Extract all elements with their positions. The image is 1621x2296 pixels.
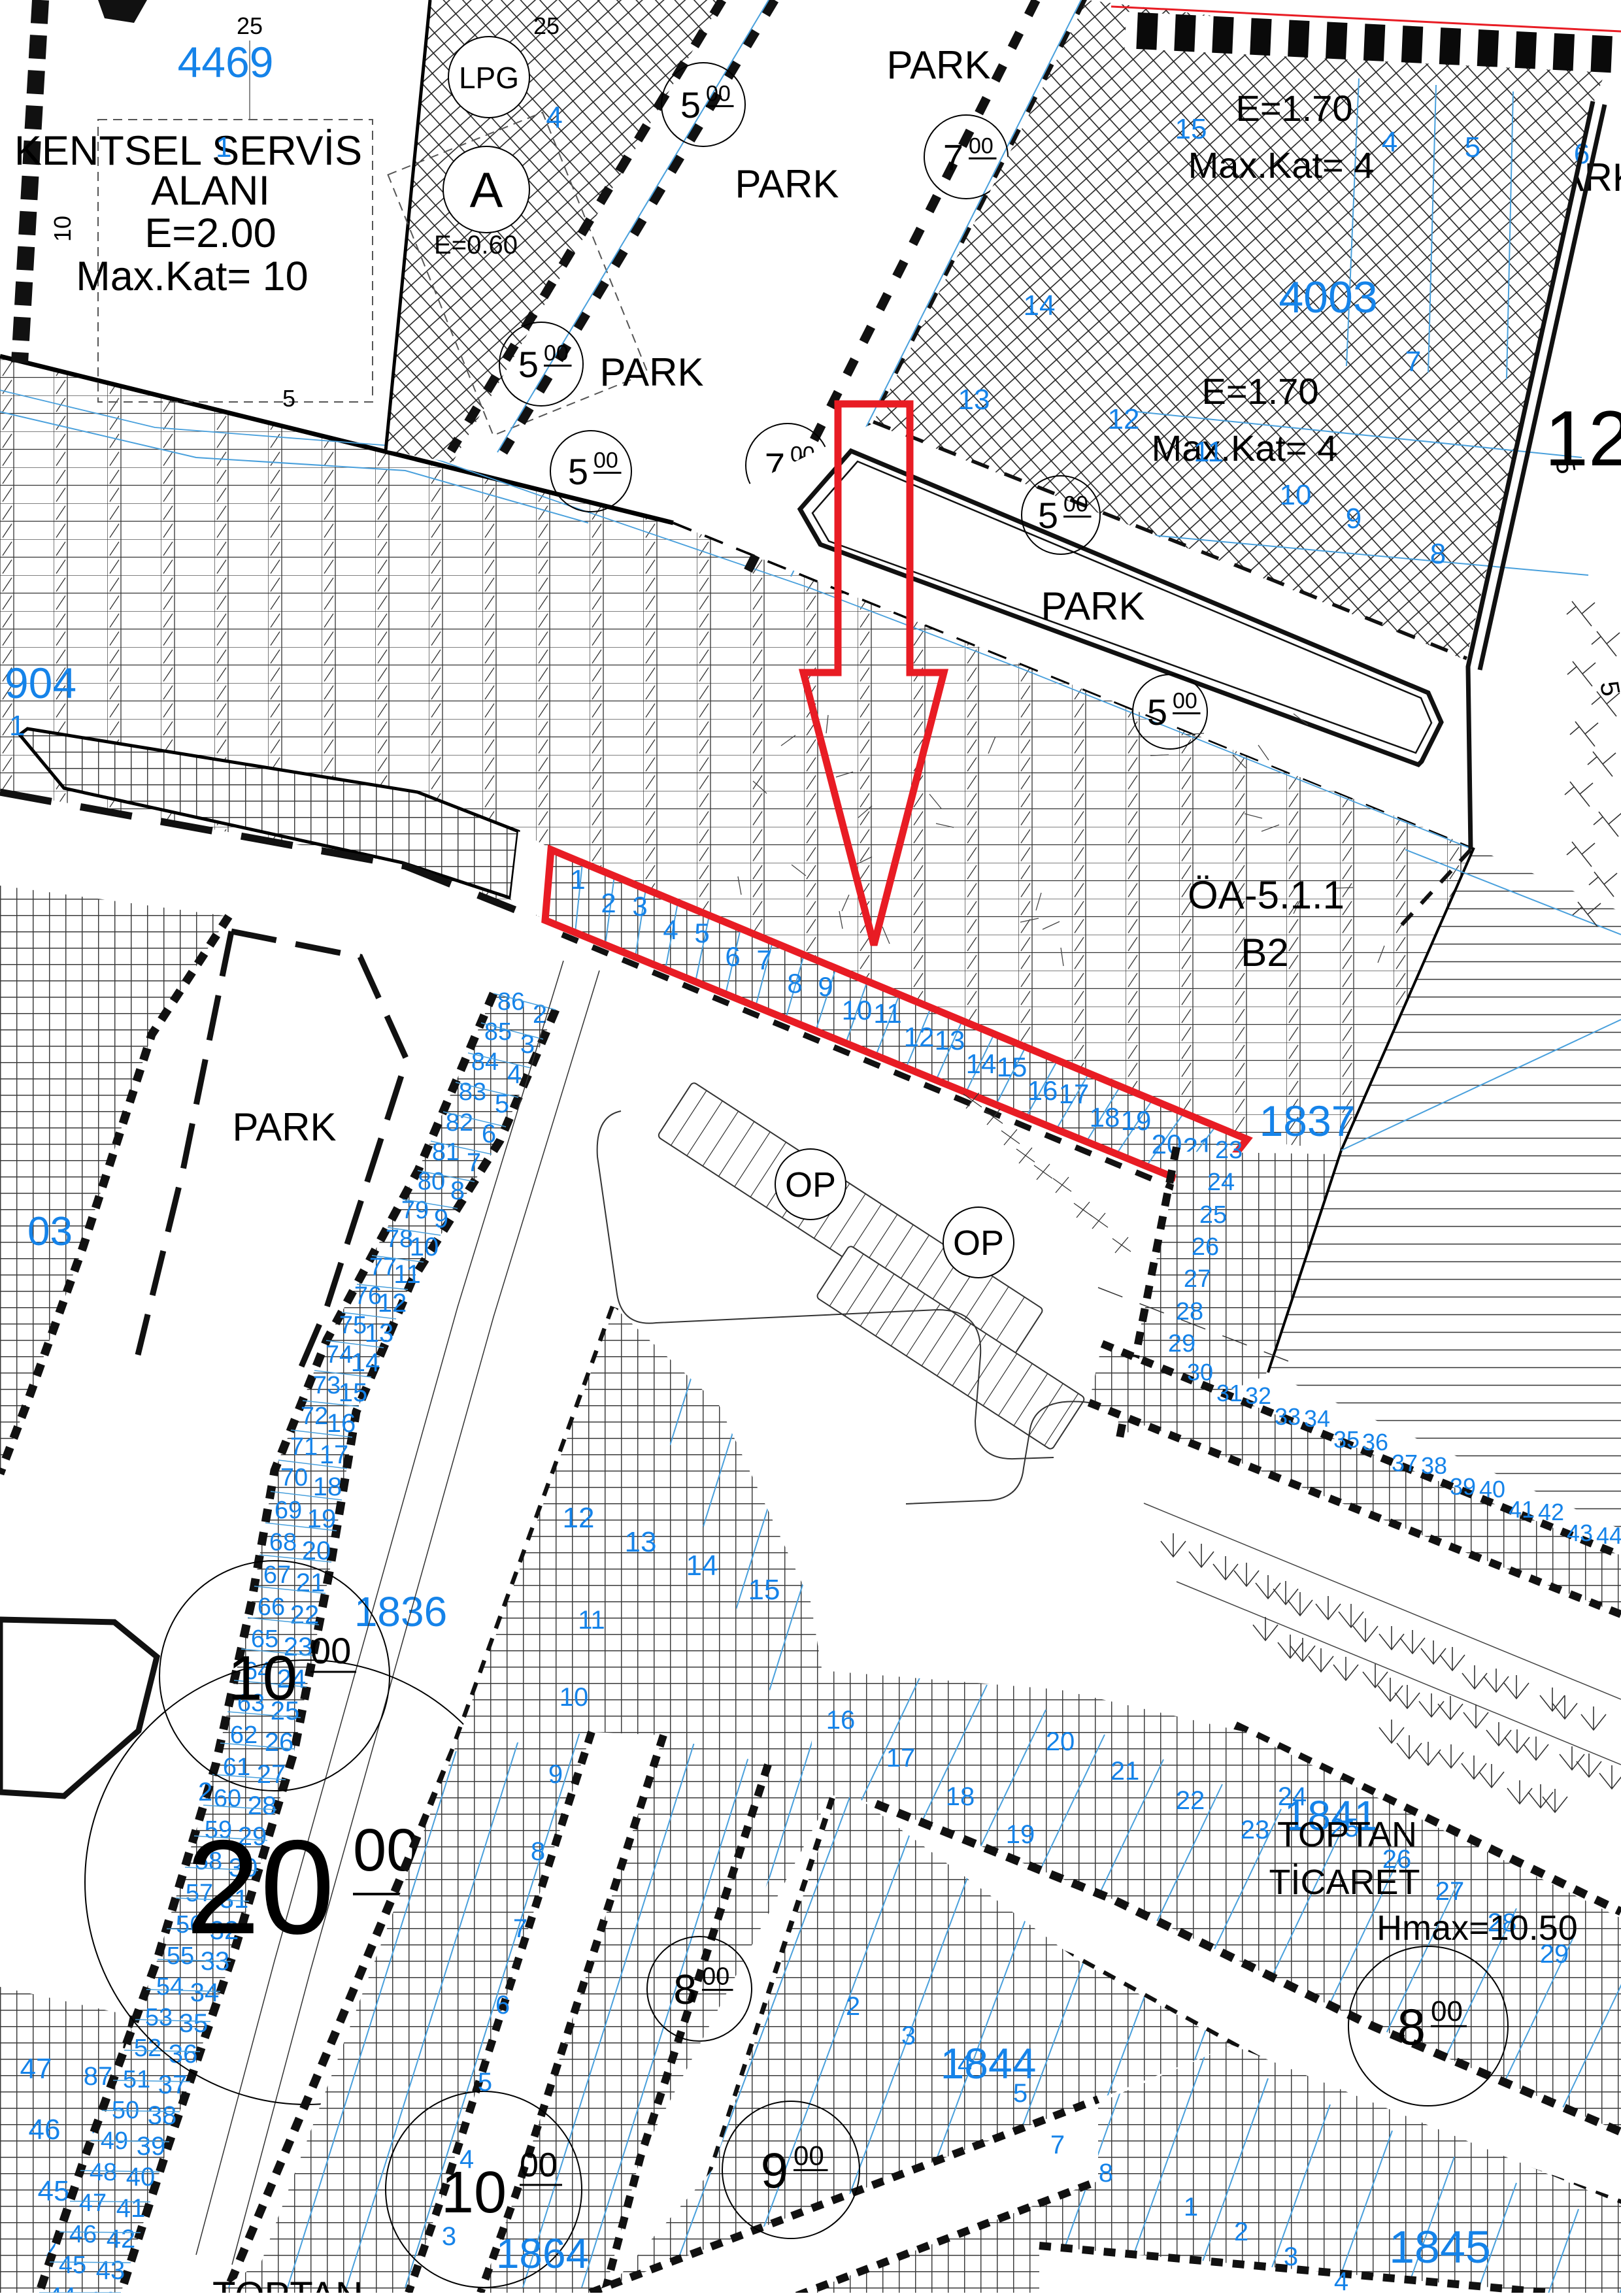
svg-text:904: 904 (5, 659, 76, 707)
svg-text:4: 4 (663, 914, 678, 945)
svg-text:PARK: PARK (600, 350, 704, 394)
svg-text:5: 5 (518, 344, 539, 385)
svg-text:ALANI: ALANI (151, 168, 270, 214)
svg-text:41: 41 (116, 2194, 146, 2223)
svg-text:2: 2 (1234, 2218, 1248, 2246)
svg-text:A: A (470, 163, 503, 218)
svg-text:22: 22 (290, 1601, 320, 1629)
svg-text:43: 43 (96, 2256, 125, 2285)
svg-text:10: 10 (842, 995, 873, 1025)
svg-text:37: 37 (1392, 1450, 1418, 1476)
svg-text:39: 39 (137, 2132, 166, 2161)
svg-text:18: 18 (946, 1782, 975, 1811)
svg-text:12: 12 (563, 1502, 595, 1534)
svg-text:85: 85 (484, 1018, 512, 1046)
svg-text:13: 13 (625, 1526, 657, 1558)
svg-text:5: 5 (694, 918, 709, 948)
svg-text:00: 00 (794, 2140, 824, 2171)
svg-text:13: 13 (365, 1319, 394, 1348)
svg-text:27: 27 (257, 1760, 286, 1789)
svg-text:00: 00 (593, 448, 618, 473)
svg-text:75: 75 (339, 1312, 367, 1339)
svg-text:66: 66 (258, 1593, 285, 1621)
svg-text:5: 5 (680, 84, 701, 125)
svg-text:80: 80 (418, 1168, 445, 1195)
svg-text:00: 00 (1063, 491, 1088, 516)
svg-text:2: 2 (846, 1992, 860, 2021)
svg-text:OP: OP (785, 1165, 836, 1205)
svg-text:8: 8 (531, 1837, 545, 1866)
svg-text:38: 38 (148, 2101, 177, 2130)
svg-text:Max.Kat= 4: Max.Kat= 4 (1188, 144, 1375, 186)
svg-text:8: 8 (1099, 2159, 1113, 2188)
svg-text:ÖA-5.1.1: ÖA-5.1.1 (1188, 873, 1345, 917)
svg-text:19: 19 (1121, 1105, 1152, 1136)
svg-text:11: 11 (873, 998, 902, 1029)
svg-text:5: 5 (478, 2068, 492, 2097)
svg-text:7: 7 (1050, 2131, 1065, 2159)
svg-text:10: 10 (410, 1233, 439, 1261)
svg-text:16: 16 (826, 1706, 856, 1735)
svg-text:6: 6 (725, 941, 740, 972)
svg-text:18: 18 (1090, 1102, 1120, 1133)
svg-text:E=0.60: E=0.60 (434, 231, 518, 259)
svg-text:KENTSEL SERVİS: KENTSEL SERVİS (14, 128, 362, 174)
svg-text:PARK: PARK (887, 43, 991, 87)
svg-text:15: 15 (1175, 113, 1207, 145)
svg-text:00: 00 (520, 2146, 558, 2184)
svg-text:41: 41 (1509, 1496, 1535, 1523)
svg-text:7: 7 (756, 944, 771, 975)
svg-text:8: 8 (1430, 538, 1446, 570)
svg-text:7: 7 (467, 1148, 481, 1177)
svg-text:25: 25 (533, 12, 560, 39)
svg-text:11: 11 (1194, 436, 1224, 468)
svg-text:9: 9 (818, 971, 833, 1002)
svg-text:14: 14 (1024, 290, 1056, 322)
svg-text:72: 72 (301, 1403, 328, 1430)
svg-text:5: 5 (1147, 691, 1167, 733)
svg-text:24: 24 (1207, 1169, 1235, 1196)
svg-text:34: 34 (190, 1978, 220, 2007)
svg-text:00: 00 (706, 81, 731, 106)
svg-text:29: 29 (1168, 1330, 1195, 1357)
svg-text:12: 12 (1108, 403, 1140, 435)
svg-text:44: 44 (86, 2287, 116, 2293)
svg-text:3: 3 (1284, 2242, 1298, 2271)
svg-text:4: 4 (1334, 2267, 1348, 2293)
svg-text:11: 11 (393, 1260, 421, 1289)
svg-text:00: 00 (969, 133, 994, 158)
svg-text:83: 83 (459, 1078, 486, 1106)
svg-text:14: 14 (686, 1550, 718, 1582)
svg-text:48: 48 (90, 2159, 117, 2186)
svg-text:14: 14 (966, 1048, 997, 1079)
svg-text:9: 9 (434, 1205, 448, 1233)
svg-text:5: 5 (282, 385, 295, 412)
svg-text:5: 5 (1465, 131, 1480, 163)
svg-text:4: 4 (546, 100, 563, 134)
svg-text:25: 25 (237, 12, 263, 39)
svg-text:7: 7 (513, 1914, 527, 1943)
svg-text:45: 45 (59, 2252, 86, 2279)
svg-text:79: 79 (401, 1197, 429, 1224)
svg-text:32: 32 (1245, 1382, 1271, 1409)
svg-text:Max.Kat= 10: Max.Kat= 10 (76, 254, 308, 299)
svg-text:PARK: PARK (735, 162, 839, 206)
svg-text:TOPTAN: TOPTAN (1277, 1815, 1417, 1854)
svg-text:69: 69 (275, 1497, 302, 1524)
svg-text:16: 16 (327, 1409, 356, 1438)
svg-text:36: 36 (1362, 1429, 1388, 1456)
svg-text:2: 2 (198, 1778, 212, 1806)
svg-text:15: 15 (339, 1378, 368, 1407)
svg-text:36: 36 (169, 2040, 198, 2069)
svg-text:TİCARET: TİCARET (1269, 1863, 1420, 1902)
svg-text:10: 10 (49, 216, 76, 242)
svg-text:3: 3 (632, 891, 647, 922)
svg-text:52: 52 (134, 2035, 161, 2062)
svg-text:60: 60 (214, 1785, 241, 1812)
svg-text:3: 3 (520, 1030, 535, 1059)
svg-text:35: 35 (179, 2009, 209, 2038)
svg-text:E=1.70: E=1.70 (1235, 88, 1352, 129)
svg-text:20: 20 (186, 1812, 335, 1962)
svg-text:1837: 1837 (1260, 1097, 1356, 1145)
svg-text:84: 84 (471, 1048, 499, 1076)
svg-text:6: 6 (495, 1991, 510, 2020)
svg-text:22: 22 (1176, 1786, 1205, 1815)
svg-text:67: 67 (263, 1561, 291, 1589)
svg-text:37: 37 (158, 2071, 188, 2099)
svg-text:42: 42 (1538, 1499, 1564, 1525)
svg-text:44: 44 (1596, 1522, 1621, 1549)
svg-text:70: 70 (280, 1464, 308, 1491)
svg-text:8: 8 (1397, 1998, 1426, 2055)
svg-text:73: 73 (313, 1372, 341, 1399)
svg-text:00: 00 (1431, 1995, 1463, 2027)
svg-text:B2: B2 (1241, 931, 1288, 974)
svg-text:Max.Kat= 4: Max.Kat= 4 (1152, 427, 1338, 469)
svg-text:17: 17 (886, 1744, 916, 1772)
svg-text:9: 9 (761, 2143, 788, 2199)
svg-text:9: 9 (548, 1760, 563, 1789)
svg-text:00: 00 (544, 341, 569, 365)
svg-text:8: 8 (787, 968, 802, 999)
svg-text:TOPTAN: TOPTAN (212, 2274, 363, 2293)
svg-text:54: 54 (156, 1973, 184, 2001)
svg-text:26: 26 (1192, 1233, 1219, 1261)
svg-text:74: 74 (326, 1341, 353, 1369)
svg-text:00: 00 (1173, 688, 1197, 713)
svg-text:23: 23 (1241, 1816, 1270, 1844)
svg-text:39: 39 (1450, 1473, 1476, 1500)
svg-text:38: 38 (1421, 1452, 1447, 1479)
svg-text:3: 3 (901, 2021, 916, 2050)
svg-text:23: 23 (1215, 1137, 1243, 1164)
svg-text:68: 68 (269, 1529, 297, 1556)
svg-text:1: 1 (216, 131, 231, 163)
svg-text:34: 34 (1304, 1405, 1330, 1432)
svg-text:1845: 1845 (1389, 2221, 1491, 2272)
svg-text:8: 8 (673, 1966, 697, 2013)
svg-text:7: 7 (1405, 346, 1421, 378)
svg-text:13: 13 (935, 1025, 965, 1056)
svg-text:3: 3 (442, 2222, 456, 2251)
svg-text:4: 4 (958, 2050, 972, 2079)
svg-text:20: 20 (1046, 1727, 1075, 1756)
svg-text:44: 44 (48, 2283, 76, 2293)
svg-text:15: 15 (997, 1052, 1028, 1082)
svg-text:46: 46 (69, 2221, 97, 2248)
svg-text:1: 1 (1184, 2193, 1198, 2221)
svg-text:46: 46 (29, 2114, 61, 2146)
svg-text:43: 43 (1567, 1520, 1593, 1546)
svg-text:71: 71 (290, 1433, 318, 1461)
svg-text:12: 12 (904, 1022, 935, 1052)
svg-text:47: 47 (79, 2189, 107, 2217)
svg-text:86: 86 (497, 988, 525, 1016)
svg-text:4003: 4003 (1278, 273, 1377, 322)
svg-text:12: 12 (378, 1289, 407, 1318)
svg-text:15: 15 (748, 1574, 780, 1606)
svg-text:9: 9 (1346, 503, 1362, 535)
svg-text:00: 00 (310, 1630, 351, 1671)
svg-text:4: 4 (1382, 126, 1397, 158)
svg-text:17: 17 (1059, 1078, 1090, 1109)
svg-text:8: 8 (450, 1176, 465, 1205)
svg-text:31: 31 (1216, 1380, 1243, 1406)
svg-text:5: 5 (1013, 2079, 1028, 2108)
svg-text:47: 47 (20, 2053, 52, 2085)
svg-text:1864: 1864 (496, 2230, 589, 2277)
svg-text:40: 40 (1479, 1476, 1505, 1503)
svg-text:11: 11 (578, 1606, 605, 1635)
svg-text:53: 53 (145, 2004, 173, 2031)
svg-text:26: 26 (265, 1728, 294, 1757)
svg-text:35: 35 (1333, 1426, 1360, 1453)
svg-text:E=2.00: E=2.00 (144, 210, 276, 256)
svg-text:1: 1 (570, 864, 585, 895)
svg-text:13: 13 (958, 384, 990, 416)
svg-text:10: 10 (560, 1683, 589, 1712)
svg-text:2: 2 (601, 888, 616, 918)
svg-text:28: 28 (1176, 1298, 1203, 1325)
svg-text:10: 10 (1280, 479, 1312, 511)
svg-text:PARK: PARK (233, 1105, 337, 1149)
svg-text:19: 19 (1006, 1820, 1035, 1849)
svg-text:27: 27 (1435, 1877, 1465, 1906)
svg-text:PARK: PARK (1041, 584, 1145, 628)
svg-text:03: 03 (27, 1209, 73, 1254)
svg-text:10: 10 (227, 1643, 297, 1713)
svg-text:4469: 4469 (178, 38, 274, 86)
svg-text:27: 27 (1184, 1265, 1211, 1293)
svg-text:1: 1 (9, 710, 25, 742)
svg-text:42: 42 (107, 2225, 136, 2254)
svg-text:00: 00 (702, 1963, 729, 1991)
svg-text:Hmax=10.50: Hmax=10.50 (1377, 1908, 1578, 1948)
svg-text:14: 14 (351, 1348, 380, 1377)
svg-text:25: 25 (1199, 1201, 1227, 1229)
svg-text:45: 45 (38, 2175, 70, 2207)
svg-text:33: 33 (1275, 1403, 1301, 1430)
svg-text:16: 16 (1028, 1075, 1058, 1106)
svg-text:4: 4 (460, 2145, 474, 2174)
svg-text:LPG: LPG (459, 61, 519, 95)
svg-text:21: 21 (1111, 1757, 1140, 1786)
svg-text:5: 5 (1038, 495, 1058, 536)
svg-text:7: 7 (943, 137, 963, 178)
svg-text:30: 30 (1187, 1359, 1213, 1386)
svg-text:E=1.70: E=1.70 (1201, 371, 1318, 412)
svg-text:5: 5 (568, 451, 588, 492)
svg-text:40: 40 (126, 2163, 156, 2191)
svg-text:17: 17 (320, 1440, 349, 1469)
svg-text:51: 51 (123, 2066, 150, 2093)
svg-text:OP: OP (953, 1223, 1004, 1263)
